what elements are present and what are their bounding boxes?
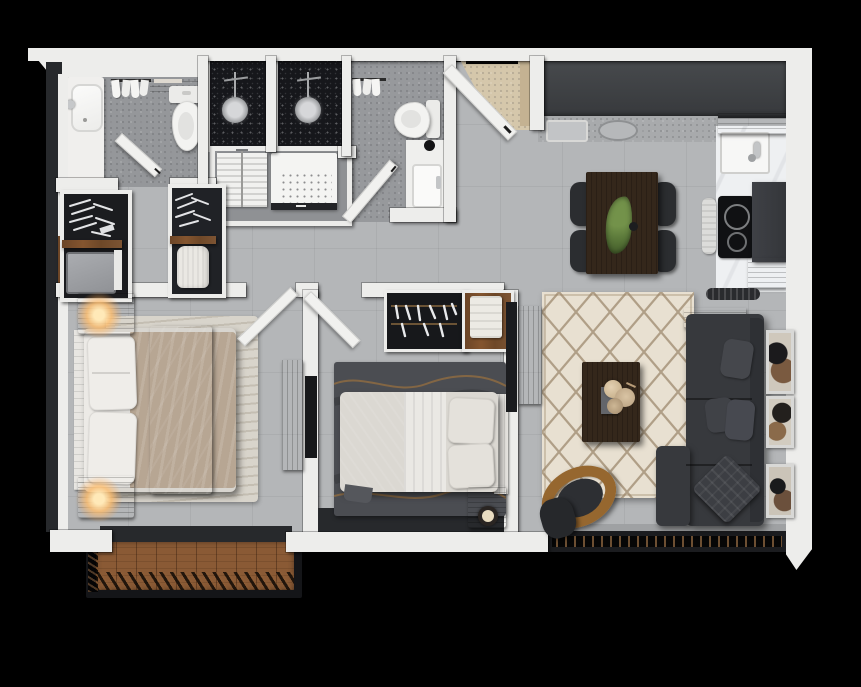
kitchen-shelf-upper xyxy=(718,112,786,134)
burner-1 xyxy=(724,204,750,230)
washer-badge xyxy=(296,205,306,207)
kitchen-sink xyxy=(720,132,770,174)
towel-2a xyxy=(352,79,361,97)
hangers-b-icon xyxy=(172,190,214,234)
wardrobe-b-shelf xyxy=(170,236,216,244)
wall-art-2 xyxy=(766,396,794,448)
towel-1c xyxy=(130,80,139,99)
kitchen-shelf-lower xyxy=(748,258,786,288)
toilet-1-button xyxy=(182,91,191,95)
toilet-2-seat xyxy=(401,110,421,128)
master-media-console xyxy=(282,360,303,470)
deck-hatch-left xyxy=(88,548,98,592)
deck-hatch-bottom xyxy=(96,572,294,590)
tub-drain xyxy=(83,118,87,122)
kitchen-faucet-knob xyxy=(748,154,756,162)
dresser-towel xyxy=(114,250,122,290)
candle-wax xyxy=(482,510,494,522)
sofa-pillow-3 xyxy=(724,399,755,441)
floor-plan xyxy=(0,0,861,687)
wall-entry-stub xyxy=(530,56,544,130)
shower-head-1-icon xyxy=(222,97,248,123)
wall-art-3 xyxy=(766,464,794,518)
vanity-faucet xyxy=(436,176,441,189)
wall-shower-divider xyxy=(266,56,276,152)
lamp-1 xyxy=(76,292,122,338)
washer-drum-dots xyxy=(280,172,332,205)
shower-arm-2 xyxy=(307,72,309,100)
sofa-pillow-1 xyxy=(719,338,755,380)
plant-pot xyxy=(629,222,638,231)
wall-bottom-master xyxy=(50,530,112,552)
master-balcony-threshold xyxy=(100,526,292,542)
bed2-blanket xyxy=(340,392,404,492)
shower-arm-1 xyxy=(234,72,236,100)
rack-hook xyxy=(236,149,248,151)
dresser xyxy=(66,252,116,294)
kitchen-towel xyxy=(702,198,716,254)
folded-clothes xyxy=(470,296,502,338)
dried-flowers-3 xyxy=(607,398,623,414)
living-tv-panel xyxy=(506,302,517,412)
floor-vent xyxy=(706,288,760,300)
bed2-duvet-fold xyxy=(404,392,446,492)
counter-sink xyxy=(546,120,588,142)
bed2-pillow-2 xyxy=(447,443,495,489)
master-pillow-2 xyxy=(87,411,137,485)
wall-art-1 xyxy=(766,330,794,394)
tall-cabinet xyxy=(752,182,786,262)
shower-head-2-icon xyxy=(295,97,321,123)
sofa-chaise xyxy=(656,446,690,526)
shelf-towels-2 xyxy=(154,79,182,83)
wall-left-white xyxy=(58,74,68,532)
counter-basin xyxy=(598,120,638,141)
living-media-console xyxy=(518,306,541,404)
wall-bath1-right xyxy=(198,56,208,192)
wall-bath2-left xyxy=(342,56,351,156)
bed2-pillow-1 xyxy=(447,397,495,445)
burner-2 xyxy=(727,232,747,252)
tub-basin xyxy=(71,84,103,132)
living-rail-slats xyxy=(552,536,782,547)
master-runner xyxy=(150,326,212,494)
toilet-1-seat xyxy=(178,112,194,140)
master-tv-panel xyxy=(305,376,317,458)
soap-dispenser xyxy=(424,140,435,151)
hangers-a-icon xyxy=(64,196,120,240)
wall-bottom-bed2 xyxy=(286,532,548,552)
lamp-2 xyxy=(76,476,122,522)
master-pillow-seam xyxy=(92,372,130,374)
rack-handle xyxy=(241,150,243,207)
kitchen-upper-cabinets xyxy=(543,60,786,118)
wardrobe-a-shelf xyxy=(62,240,122,248)
hanging-garment xyxy=(177,246,209,288)
towel-2c xyxy=(372,79,381,96)
bed2-closet-hangers-icon xyxy=(388,294,460,342)
